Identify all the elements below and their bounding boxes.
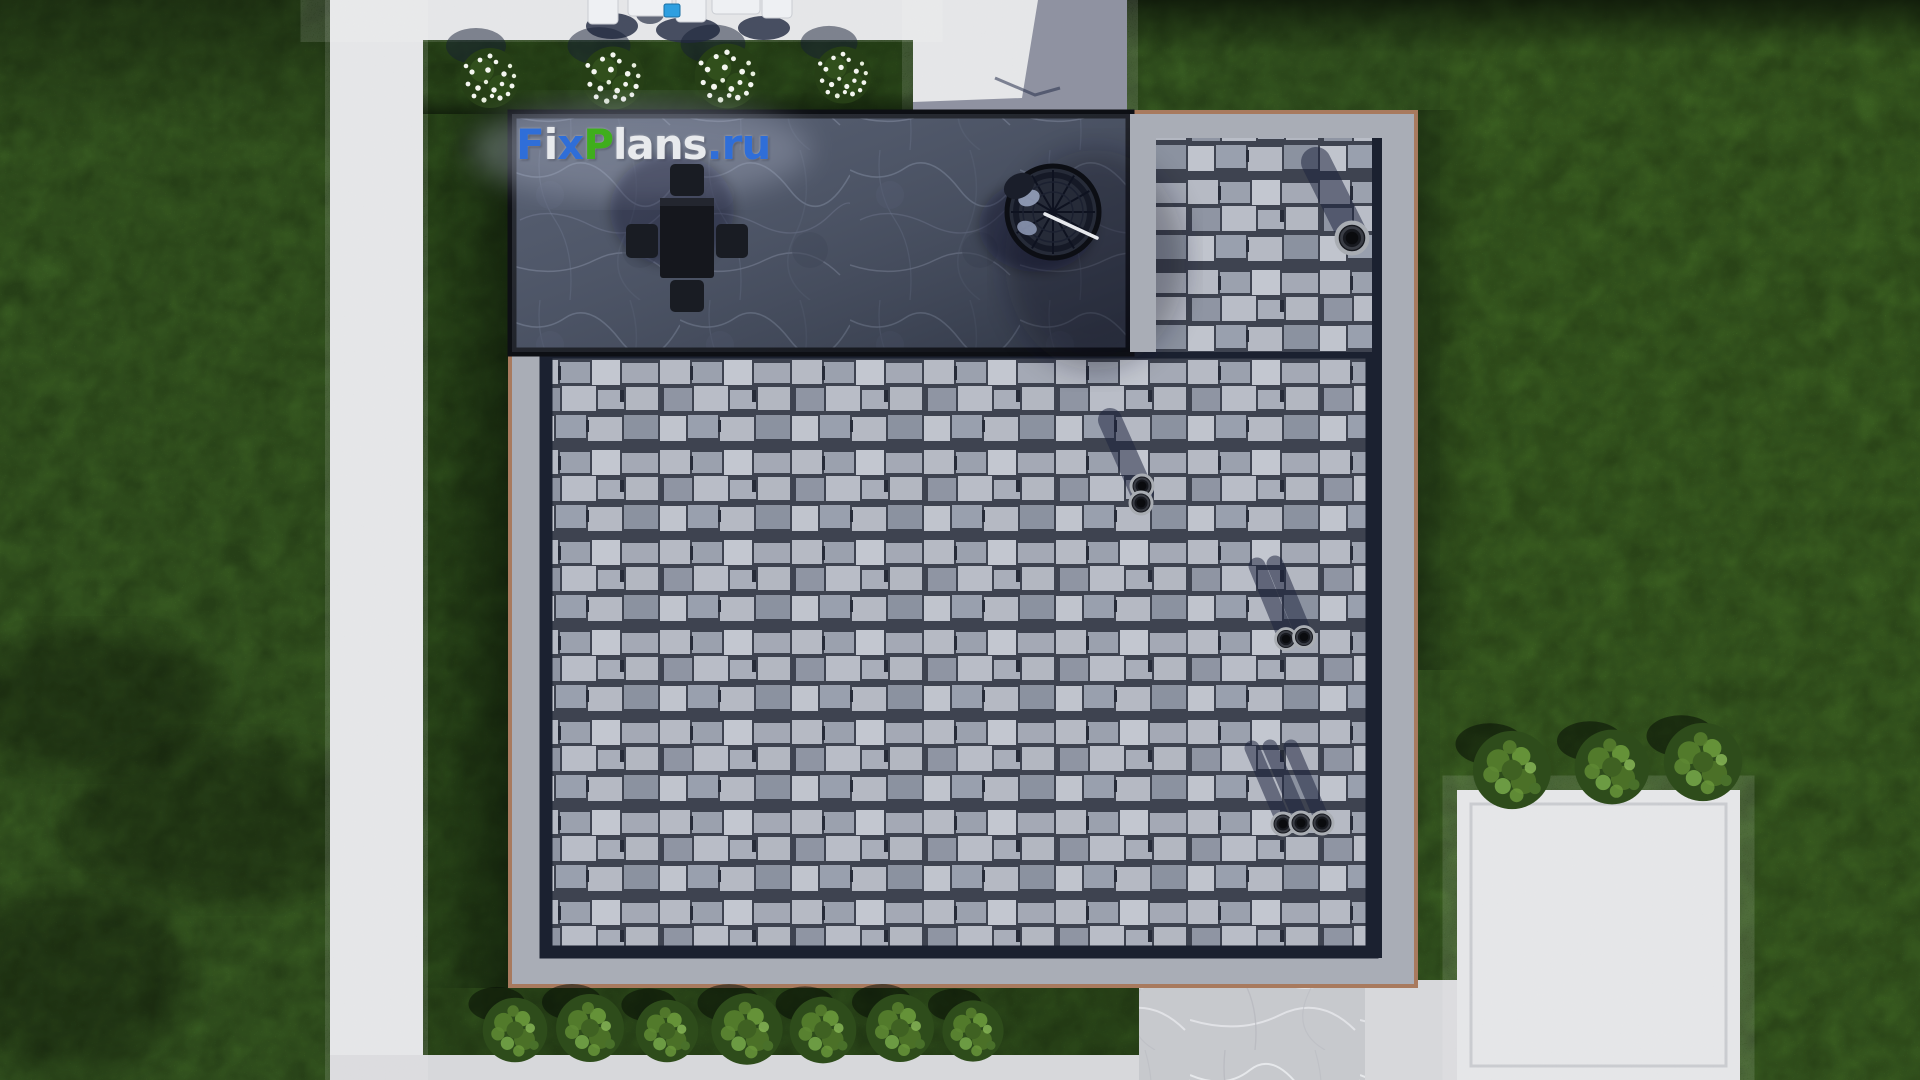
- marble-walkway: [1139, 978, 1365, 1080]
- concrete-grain: [1457, 790, 1740, 1080]
- grass-shade-patch: [70, 740, 370, 900]
- shadow-right-of-building: [1418, 110, 1472, 670]
- right-bush-row: [1456, 715, 1743, 809]
- roof-vent-pipe: [1311, 812, 1333, 834]
- flower-bush: [815, 47, 872, 104]
- aerial-render-scene: FixPlans.ru: [0, 0, 1920, 1080]
- patio-lounger: [712, 0, 760, 14]
- green-bush: [556, 994, 624, 1062]
- green-bush: [483, 998, 548, 1063]
- green-bush: [636, 1000, 699, 1063]
- green-bush: [790, 997, 857, 1064]
- concrete-pad-extension: [1360, 980, 1460, 1080]
- flower-bush: [695, 44, 760, 109]
- patio-chair: [762, 0, 792, 18]
- green-bush: [1473, 731, 1551, 809]
- dining-table: [660, 198, 714, 278]
- roof-vent-pipe: [1130, 492, 1152, 514]
- roof-vent-pipe: [1290, 812, 1312, 834]
- shadow-band-top-left: [0, 0, 330, 130]
- patio-chair: [588, 0, 618, 24]
- dining-chair: [716, 224, 748, 258]
- building: [470, 100, 1418, 988]
- shadow-band-top-right: [1127, 0, 1920, 52]
- roof-vent-pipe: [1294, 627, 1315, 648]
- patio-blue-accessory: [664, 4, 680, 17]
- shadow-left-strip: [440, 114, 508, 988]
- flower-bush: [460, 48, 520, 108]
- dining-chair: [670, 280, 704, 312]
- dining-table-edge: [660, 198, 714, 206]
- green-bush: [1575, 730, 1650, 805]
- roof-vent-pipe: [1337, 223, 1368, 254]
- roof-divider-band: [1130, 114, 1156, 352]
- scene-canvas: [0, 0, 1920, 1080]
- green-bush: [942, 1000, 1003, 1061]
- furniture-shadow: [738, 16, 790, 40]
- roof-shingle-main: [546, 352, 1372, 952]
- green-bush: [866, 994, 934, 1062]
- dining-chair: [670, 164, 704, 196]
- concrete-grain: [330, 0, 423, 1080]
- green-bush: [711, 993, 782, 1064]
- dining-chair: [626, 224, 658, 258]
- green-bush: [1664, 723, 1742, 801]
